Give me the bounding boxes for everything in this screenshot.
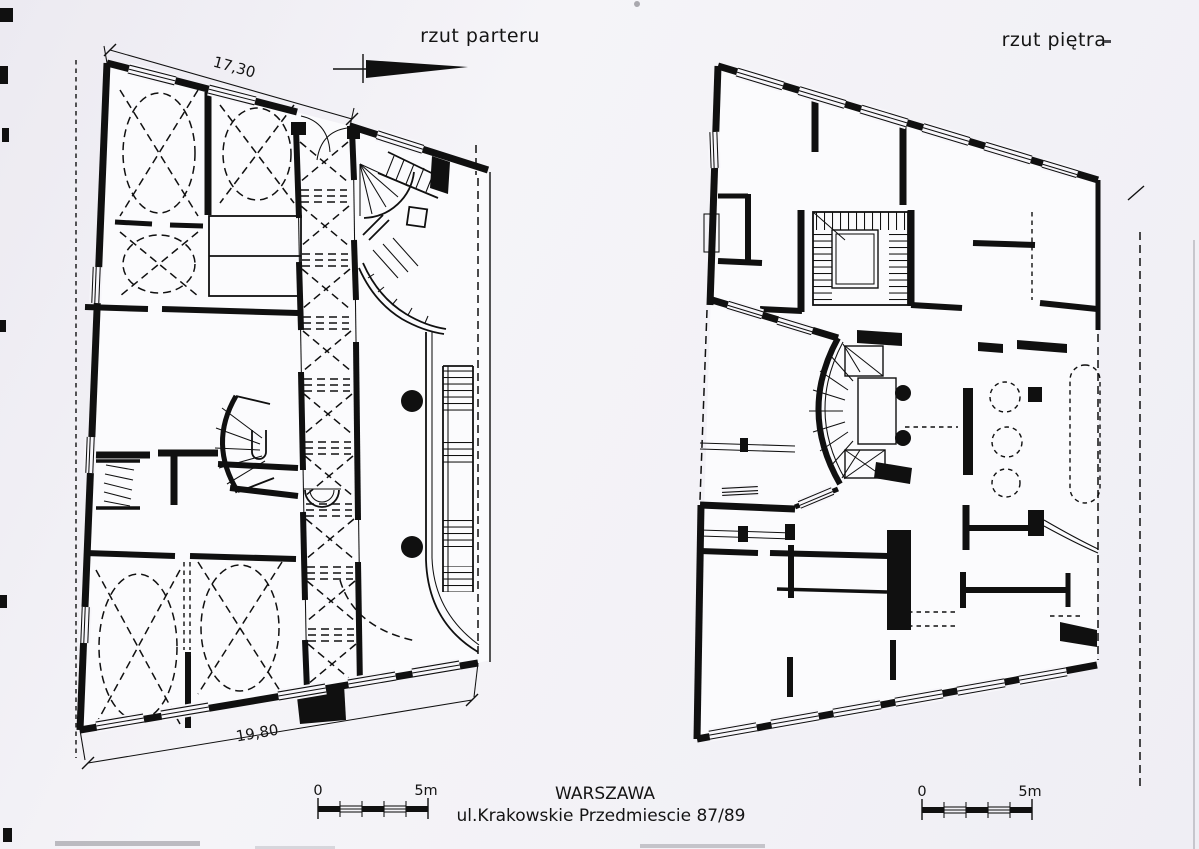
scale-bar-right: 0 5m — [917, 784, 1041, 820]
dimension-label-top: 17,30 — [211, 53, 257, 82]
scale-5m-label: 5m — [1018, 784, 1041, 800]
plan-footprint — [697, 66, 1098, 739]
scale-zero-label: 0 — [917, 784, 926, 800]
entrance-arrow-icon — [333, 54, 468, 83]
floor-plan-pietro — [697, 66, 1144, 788]
column — [401, 536, 423, 558]
scale-5m-label: 5m — [414, 783, 437, 799]
chimney-mass — [887, 530, 911, 630]
left-plan-title: rzut parteru — [420, 25, 540, 47]
scanned-drawing-sheet: 17,30 19,80 — [0, 0, 1199, 849]
column — [401, 390, 423, 412]
right-plan-title: rzut piętra — [1002, 29, 1107, 51]
scale-bar-left: 0 5m — [313, 783, 437, 819]
caption-address: ul.Krakowskie Przedmiescie 87/89 — [457, 806, 746, 826]
plans-canvas: 17,30 19,80 — [0, 0, 1199, 849]
caption-city: WARSZAWA — [555, 784, 655, 804]
column — [895, 385, 911, 401]
scale-zero-label: 0 — [313, 783, 322, 799]
floor-plan-parter: 17,30 19,80 — [76, 44, 490, 769]
column — [895, 430, 911, 446]
plan-footprint — [80, 63, 490, 730]
dimension-label-bottom: 19,80 — [235, 721, 280, 746]
